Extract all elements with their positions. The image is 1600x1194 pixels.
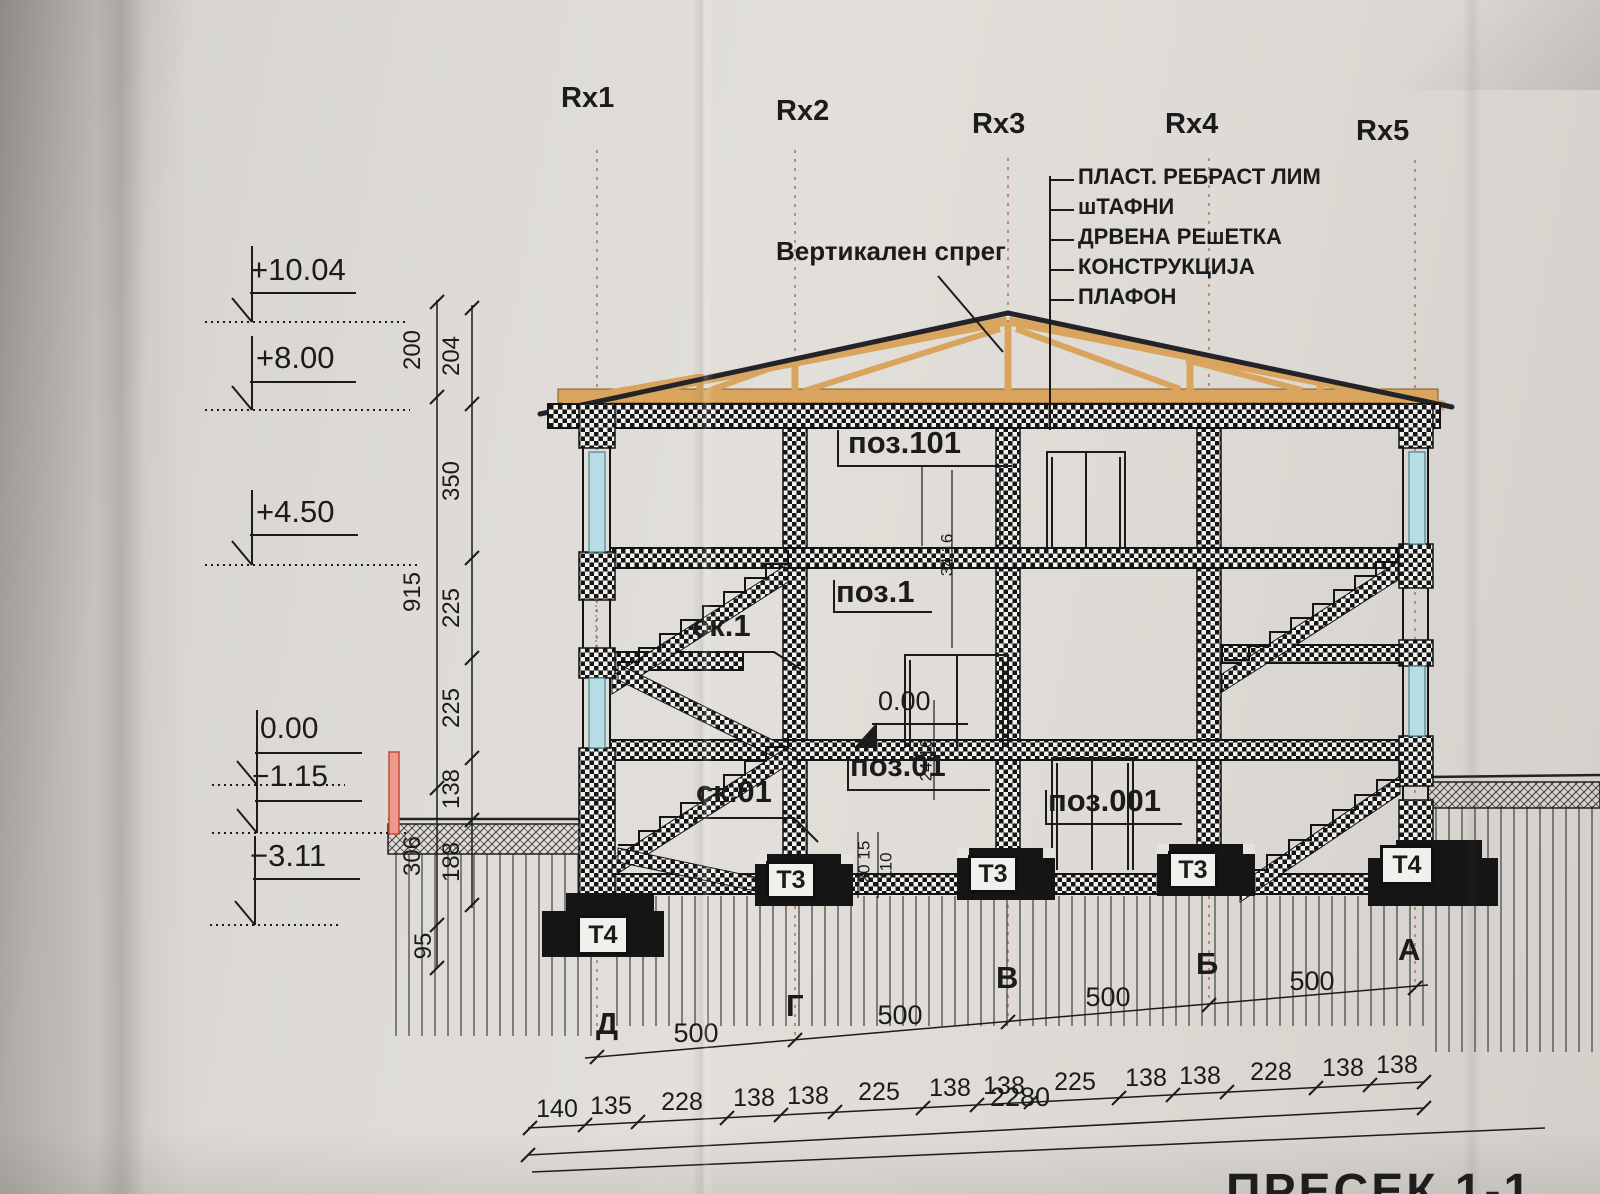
window-strips bbox=[1409, 452, 1425, 736]
sheet-title-partial: ПРЕСЕК 1-1 bbox=[1226, 1168, 1533, 1194]
axis-spacing-dim-2: 500 bbox=[877, 1002, 922, 1029]
legend-item-roof-sheet: ПЛАСТ. РЕБРАСТ ЛИМ bbox=[1078, 166, 1321, 188]
grid-axis-label-rx4: Rx4 bbox=[1165, 110, 1218, 139]
axis-spacing-dim-4: 500 bbox=[1289, 968, 1334, 995]
vdim-138: 138 bbox=[440, 769, 464, 809]
small-dim-24-16: 24 16 bbox=[918, 739, 935, 782]
floor-level-zero-inline: 0.00 bbox=[878, 688, 931, 715]
vdim-95: 95 bbox=[412, 933, 436, 960]
slab-callout-pos1: поз.1 bbox=[836, 576, 915, 607]
vdim-200: 200 bbox=[401, 330, 425, 370]
footing-label-t3-b: Т3 bbox=[1168, 851, 1218, 889]
red-marker-bar bbox=[389, 752, 399, 834]
grid-axis-label-d: Д bbox=[596, 1008, 618, 1039]
legend-item-battens: шТАФНИ bbox=[1078, 196, 1174, 218]
roof-truss bbox=[540, 313, 1452, 414]
elevation-zero: 0.00 bbox=[260, 714, 318, 744]
axis-spacing-dim-3: 500 bbox=[1085, 984, 1130, 1011]
right-wall bbox=[1399, 404, 1433, 864]
small-dim-110: 110 bbox=[878, 852, 895, 879]
elevation-plus-4-50: +4.50 bbox=[256, 496, 334, 527]
dim-138h: 138 bbox=[1376, 1053, 1418, 1078]
vdim-915: 915 bbox=[401, 572, 425, 612]
footing-label-t3-g: Т3 bbox=[766, 861, 816, 899]
grid-axis-label-rx1: Rx1 bbox=[561, 84, 614, 113]
small-dim-20-15: 20 15 bbox=[856, 841, 873, 884]
elevation-minus-1-15: −1.15 bbox=[252, 762, 328, 792]
dim-225a: 225 bbox=[858, 1080, 900, 1105]
small-dim-34-16: 34 16 bbox=[939, 534, 956, 577]
dim-138e: 138 bbox=[1125, 1066, 1167, 1091]
dim-228a: 228 bbox=[661, 1090, 703, 1115]
legend-item-ceiling: ПЛАФОН bbox=[1078, 286, 1176, 308]
vdim-204: 204 bbox=[440, 336, 464, 376]
axis-spacing-dim-1: 500 bbox=[673, 1020, 718, 1047]
vdim-306: 306 bbox=[401, 836, 425, 876]
legend-item-structure: КОНСТРУКЦИЈА bbox=[1078, 256, 1255, 278]
stair-callout-sk1: ск.1 bbox=[692, 610, 751, 641]
dim-138a: 138 bbox=[733, 1086, 775, 1111]
footing-label-t4-left: Т4 bbox=[577, 915, 629, 955]
scanned-section-drawing: Rx1 Rx2 Rx3 Rx4 Rx5 ПЛАСТ. РЕБРАСТ ЛИМ ш… bbox=[0, 0, 1600, 1194]
dim-138f: 138 bbox=[1179, 1064, 1221, 1089]
legend-item-timber-truss: ДРВЕНА РЕшЕТКА bbox=[1078, 226, 1282, 248]
elevation-plus-8-00: +8.00 bbox=[256, 342, 334, 373]
left-wall bbox=[579, 404, 615, 913]
grid-axis-label-b: Б bbox=[1196, 948, 1218, 979]
grid-axis-label-a: А bbox=[1398, 934, 1420, 965]
slab-callout-pos101: поз.101 bbox=[848, 427, 961, 458]
footing-label-t4-right: Т4 bbox=[1380, 845, 1434, 885]
dim-138g: 138 bbox=[1322, 1056, 1364, 1081]
grid-axis-label-rx5: Rx5 bbox=[1356, 117, 1409, 146]
grid-axis-label-rx2: Rx2 bbox=[776, 97, 829, 126]
dim-140: 140 bbox=[536, 1097, 578, 1122]
grid-axis-label-rx3: Rx3 bbox=[972, 110, 1025, 139]
grid-axis-label-v: В bbox=[996, 962, 1018, 993]
slab-callout-pos001: поз.001 bbox=[1048, 785, 1161, 816]
stair-callout-sk01: ск.01 bbox=[696, 776, 772, 807]
vdim-350: 350 bbox=[440, 461, 464, 501]
grid-axis-label-g: Г bbox=[786, 990, 804, 1021]
elevation-plus-10-04: +10.04 bbox=[250, 254, 346, 285]
footing-label-t3-v: Т3 bbox=[968, 855, 1018, 893]
dim-228b: 228 bbox=[1250, 1060, 1292, 1085]
dim-138c: 138 bbox=[929, 1076, 971, 1101]
dim-138b: 138 bbox=[787, 1084, 829, 1109]
dim-135: 135 bbox=[590, 1094, 632, 1119]
slab-450 bbox=[610, 548, 1404, 568]
vdim-225b: 225 bbox=[440, 688, 464, 728]
vertical-brace-callout: Вертикален спрег bbox=[776, 238, 1006, 264]
roof-slab bbox=[548, 404, 1440, 428]
elevation-minus-3-11: −3.11 bbox=[250, 840, 326, 871]
dim-225b: 225 bbox=[1054, 1070, 1096, 1095]
vdim-225a: 225 bbox=[440, 588, 464, 628]
vdim-188: 188 bbox=[440, 842, 464, 882]
dim-total-2280: 2280 bbox=[990, 1084, 1050, 1111]
